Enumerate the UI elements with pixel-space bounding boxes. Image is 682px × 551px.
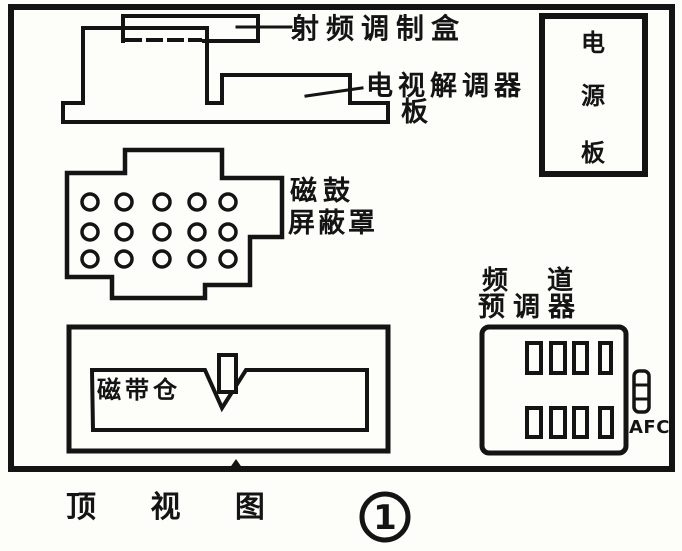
tuner-slot [574, 343, 587, 373]
tuner-slot [551, 408, 565, 437]
channel-tuner-label-line2: 预调器 [478, 292, 583, 323]
figure-number: 1 [373, 498, 397, 538]
tuner-slot [600, 343, 611, 373]
power-board-label-char1: 电 [581, 29, 605, 57]
vent-hole [154, 251, 170, 267]
power-board-label-char3: 板 [581, 139, 606, 167]
tuner-slot [574, 408, 587, 437]
afc-trimmer-shape [634, 371, 649, 412]
rf-modulator-label: 射频调制盒 [290, 12, 466, 45]
vent-hole [116, 251, 132, 267]
drum-shield-shape [67, 150, 282, 298]
vent-hole [116, 194, 132, 210]
tuner-slots [527, 343, 612, 437]
vent-hole [220, 251, 236, 267]
vent-hole [189, 251, 205, 267]
tape-latch-shape [219, 355, 236, 392]
afc-label: AFC [629, 417, 670, 438]
drum-shield-label-line1: 磁鼓 [290, 176, 356, 207]
power-board-label-char2: 源 [581, 82, 605, 110]
tuner-slot [551, 343, 565, 373]
vent-hole [82, 251, 98, 267]
vent-hole [220, 194, 236, 210]
frame-arrow-mark [229, 459, 243, 469]
vent-hole [82, 224, 98, 240]
tape-compartment-label: 磁带仓 [97, 376, 181, 404]
vent-hole [189, 194, 205, 210]
scanned-diagram-page: 射频调制盒 电视解调器 板 磁鼓 屏蔽罩 电 源 板 频 道 预调器 AFC 磁… [0, 0, 682, 551]
vent-hole [82, 194, 98, 210]
top-view-diagram-canvas: 射频调制盒 电视解调器 板 磁鼓 屏蔽罩 电 源 板 频 道 预调器 AFC 磁… [0, 0, 682, 551]
vent-hole [116, 224, 132, 240]
tuner-slot [527, 343, 541, 373]
vent-hole [154, 224, 170, 240]
tv-demodulator-label-line1: 电视解调器 [366, 71, 526, 102]
figure-number-badge: 1 [362, 494, 408, 540]
caption-title: 顶 视 图 [66, 490, 269, 525]
tuner-slot [527, 408, 541, 437]
vent-hole [220, 224, 236, 240]
tuner-slot [600, 408, 612, 437]
tv-demodulator-label-line2: 板 [401, 97, 428, 128]
drum-shield-label-line2: 屏蔽罩 [288, 208, 378, 239]
vent-hole [189, 224, 205, 240]
tv-demodulator-leader-line [306, 88, 362, 96]
channel-preset-tuner-shape [482, 327, 626, 453]
drum-shield-holes [82, 194, 236, 267]
vent-hole [154, 194, 170, 210]
